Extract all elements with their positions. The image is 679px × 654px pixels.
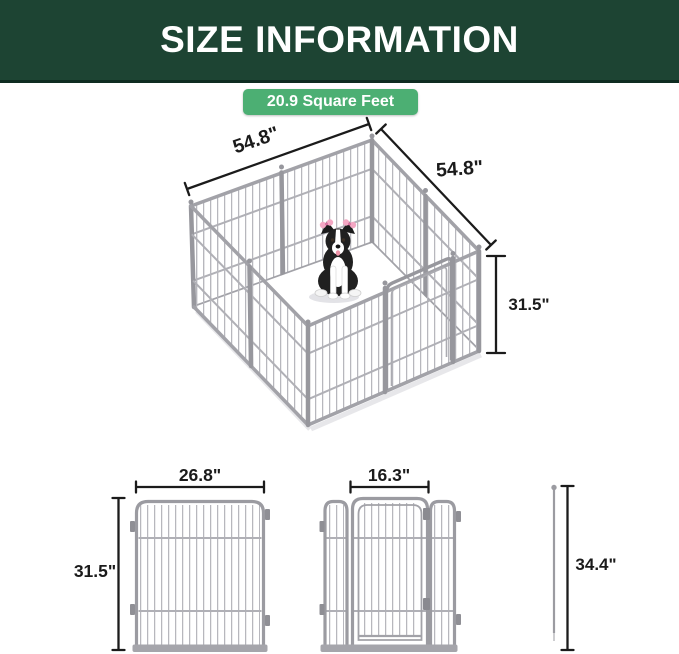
dimension-label-panel-width: 26.8" [179,465,221,485]
pen-3d-illustration: 54.8" 54.8" 31.5" [185,118,550,429]
dimension-label-height: 31.5" [508,295,549,314]
gate-left-wires [328,505,344,645]
gate-door-wires [361,503,419,636]
panel-diagram: 26.8" 31.5" [74,465,270,652]
panel-wires [140,505,260,645]
size-diagram: 54.8" 54.8" 31.5" 26.8" 31.5" [0,0,679,654]
panel-base-bar [133,645,268,653]
dimension-label-door-width: 16.3" [368,465,410,485]
stake-head [551,485,556,490]
gate-right-wires [434,505,452,645]
dimension-label-stake-height: 34.4" [575,555,616,574]
stake-diagram: 34.4" [551,485,616,650]
gate-base-bar [321,645,458,653]
dimension-line-stake-height [562,486,574,650]
gate-diagram: 16.3" [320,465,462,652]
dimension-label-width-right: 54.8" [435,156,484,181]
dimension-label-width-left: 54.8" [230,122,282,158]
dimension-line-height [487,256,505,353]
dimension-label-panel-height: 31.5" [74,561,116,581]
